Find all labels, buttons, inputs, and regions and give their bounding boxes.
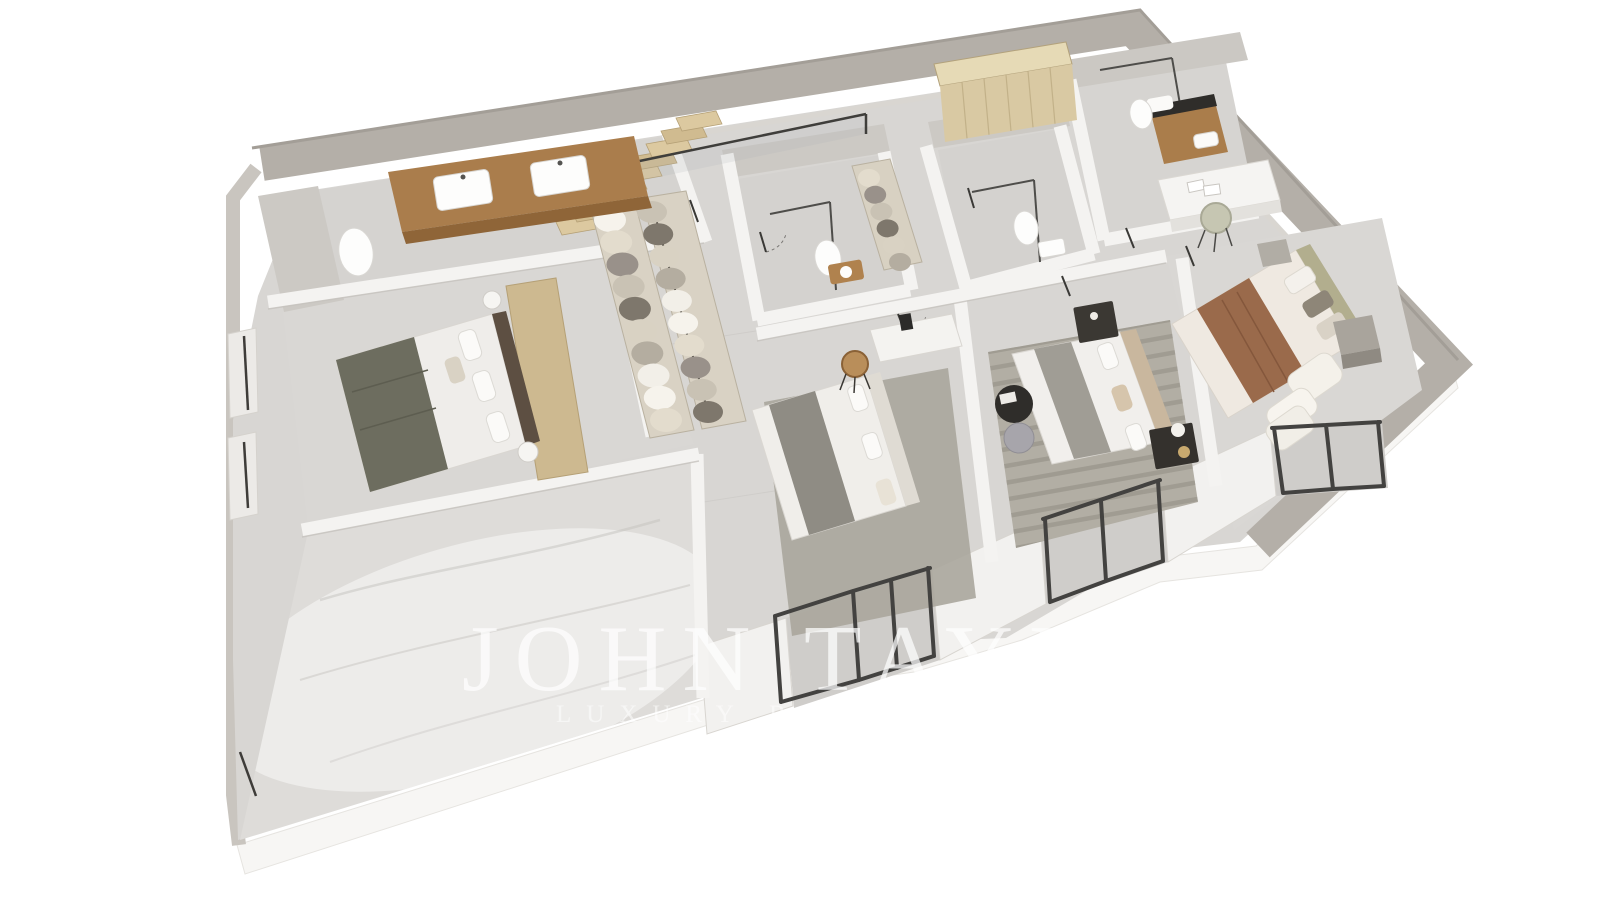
hanging-garment	[687, 379, 717, 401]
hanging-garment	[858, 169, 880, 187]
hanging-garment	[619, 297, 651, 321]
hanging-garment	[693, 401, 723, 423]
nightstand-decor	[1090, 312, 1098, 320]
washbasin	[840, 266, 852, 278]
faucet	[558, 161, 563, 166]
window-niche	[228, 328, 258, 418]
hanging-garment	[644, 386, 676, 410]
floor-plan-render: JOHN TAYLOR LUXURY REAL ESTATE	[0, 0, 1600, 900]
building	[188, 10, 1458, 874]
hanging-garment	[889, 253, 911, 271]
hanging-garment	[649, 245, 679, 267]
flower-vase	[1171, 423, 1185, 437]
hanging-garment	[681, 357, 711, 379]
hanging-garment	[883, 236, 905, 254]
faucet	[461, 175, 466, 180]
hanging-garment	[613, 275, 645, 299]
watermark-tagline: LUXURY REAL ESTATE	[556, 701, 1093, 728]
desk-chair	[842, 351, 868, 377]
watermark-brand: JOHN TAYLOR	[462, 607, 1265, 711]
gold-dish	[1178, 446, 1190, 458]
cube-side-table	[1257, 239, 1292, 267]
table-lamp	[483, 291, 501, 309]
round-side-table	[995, 385, 1033, 423]
cube-side-table	[1333, 315, 1380, 355]
nightstand-dark	[1073, 301, 1119, 343]
hanging-garment	[864, 186, 886, 204]
hanging-garment	[877, 219, 899, 237]
chair-leg	[854, 377, 855, 393]
watermark: JOHN TAYLOR LUXURY REAL ESTATE	[462, 607, 1265, 728]
hanging-garment	[606, 252, 638, 276]
hanging-garment	[662, 290, 692, 312]
hanging-garment	[625, 319, 657, 343]
hanging-garment	[631, 341, 663, 365]
floor-plan-svg: JOHN TAYLOR LUXURY REAL ESTATE	[0, 0, 1600, 900]
hanging-garment	[870, 203, 892, 221]
hanging-garment	[650, 408, 682, 432]
hanging-garment	[656, 268, 686, 290]
desk-papers	[1203, 184, 1220, 196]
pouf	[1004, 423, 1034, 453]
hanging-garment	[600, 230, 632, 254]
hanging-garment	[638, 364, 670, 388]
table-lamp	[518, 442, 538, 462]
hanging-garment	[674, 334, 704, 356]
hanging-garment	[643, 223, 673, 245]
hanging-garment	[668, 312, 698, 334]
